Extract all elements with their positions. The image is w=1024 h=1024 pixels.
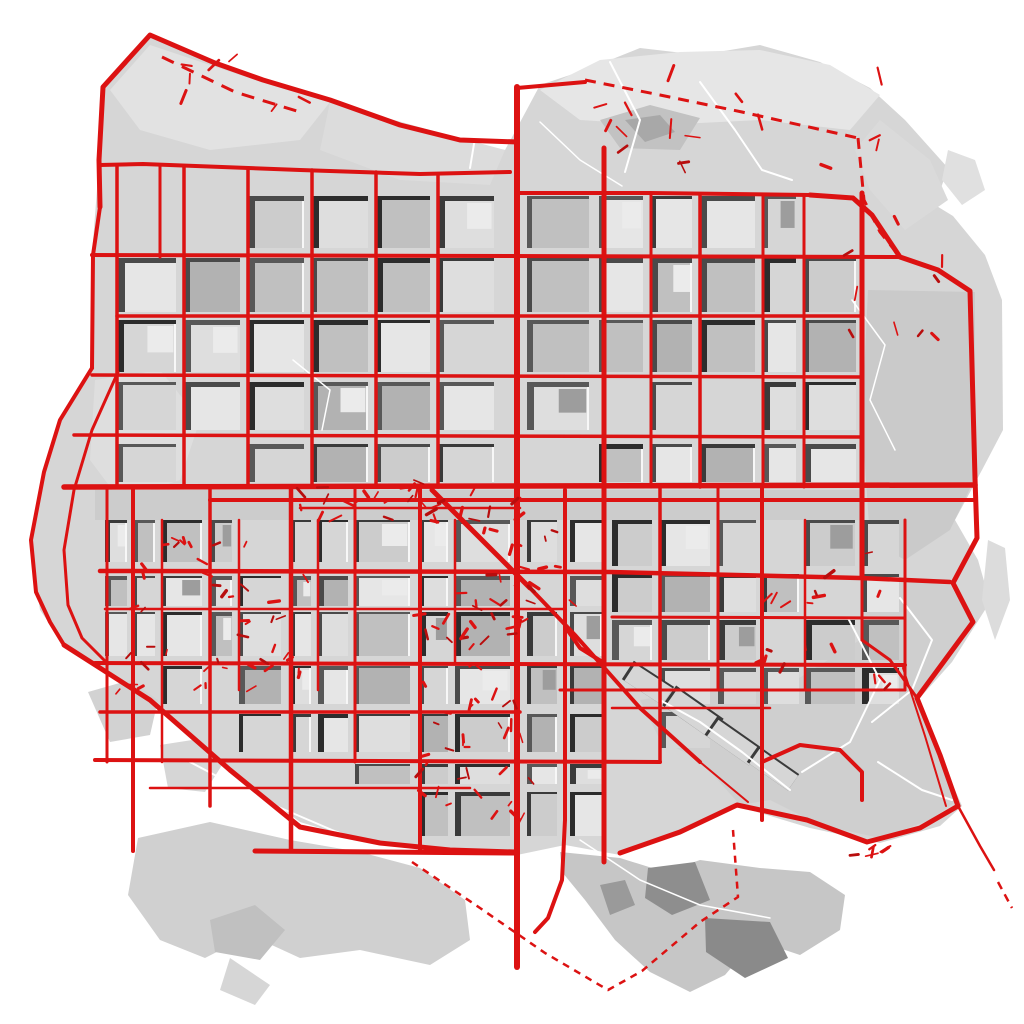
city-block-roof xyxy=(868,524,899,566)
city-block-annex xyxy=(781,201,795,228)
city-block-annex xyxy=(382,524,408,546)
city-block-roof xyxy=(295,522,311,562)
city-block-roof xyxy=(575,717,602,752)
city-block-highlight xyxy=(302,201,304,248)
city-block-roof xyxy=(531,794,557,836)
road-noise-fragment xyxy=(414,614,425,616)
city-block-roof xyxy=(707,201,755,248)
city-block-highlight xyxy=(408,578,410,606)
city-block-roof xyxy=(381,323,430,372)
city-block-roof xyxy=(109,614,127,656)
city-block-roof xyxy=(190,262,240,312)
terrain-islet-northeast xyxy=(942,150,985,205)
city-block-roof xyxy=(322,614,348,656)
city-block-roof xyxy=(606,449,643,482)
city-block-roof xyxy=(723,523,756,566)
city-block-highlight xyxy=(753,448,755,482)
road-noise-fragment xyxy=(182,64,192,65)
city-block-roof xyxy=(575,795,602,836)
city-block-annex xyxy=(382,580,408,595)
road-h-851 xyxy=(255,851,515,853)
road-noise-fragment xyxy=(300,505,301,510)
city-block-highlight xyxy=(309,668,311,704)
city-block-roof xyxy=(575,523,602,562)
city-block-roof xyxy=(444,386,494,430)
city-block-annex xyxy=(223,525,232,546)
road-noise-fragment xyxy=(401,487,411,488)
city-block-roof xyxy=(724,578,756,612)
city-block-roof xyxy=(359,614,410,656)
city-block-roof xyxy=(531,522,557,562)
road-noise-fragment xyxy=(269,601,280,602)
city-block-roof xyxy=(255,387,304,430)
city-block-annex xyxy=(686,526,708,549)
city-block-highlight xyxy=(690,447,692,482)
road-noise-fragment xyxy=(460,507,462,515)
city-block-annex xyxy=(303,582,310,596)
city-block-roof xyxy=(382,200,430,248)
city-block-roof xyxy=(443,261,494,312)
road-noise-fragment xyxy=(874,674,875,683)
city-block-roof xyxy=(167,669,202,704)
road-noise-fragment xyxy=(484,528,485,533)
city-block-roof xyxy=(359,716,410,752)
road-noise-fragment xyxy=(517,544,521,546)
road-noise-fragment xyxy=(444,712,451,713)
city-block-highlight xyxy=(492,447,494,482)
city-block-roof xyxy=(618,578,652,612)
road-noise-fragment xyxy=(229,54,237,61)
city-block-roof xyxy=(576,580,602,606)
city-block-roof xyxy=(425,767,448,784)
city-block-annex xyxy=(587,616,601,639)
road-noise-fragment xyxy=(815,591,817,595)
road-noise-fragment xyxy=(764,656,766,661)
city-block-roof xyxy=(382,386,430,430)
city-block-roof xyxy=(867,577,899,612)
road-h-255 xyxy=(92,255,900,257)
city-block-annex xyxy=(622,202,641,228)
city-block-annex xyxy=(739,627,755,646)
terrain-island-southwest-finger xyxy=(220,958,270,1005)
city-block-annex xyxy=(341,388,366,412)
city-block-roof xyxy=(667,625,710,660)
road-noise-fragment xyxy=(438,500,443,503)
city-block-roof xyxy=(809,261,856,312)
road-noise-fragment xyxy=(213,585,220,586)
city-block-annex xyxy=(673,265,690,292)
city-block-roof xyxy=(809,385,856,430)
city-block-highlight xyxy=(446,578,448,606)
city-block-roof xyxy=(111,580,127,606)
city-block-annex xyxy=(588,770,601,779)
city-block-roof xyxy=(317,447,368,482)
city-block-highlight xyxy=(508,717,510,752)
city-block-highlight xyxy=(346,522,348,562)
city-block-highlight xyxy=(555,767,557,784)
city-block-highlight xyxy=(408,614,410,656)
city-block-annex xyxy=(483,671,508,690)
city-block-highlight xyxy=(690,263,692,312)
city-block-roof xyxy=(533,324,589,372)
city-block-roof xyxy=(618,524,652,566)
city-block-roof xyxy=(443,447,494,482)
city-block-roof xyxy=(770,263,796,312)
city-block-roof xyxy=(656,385,692,430)
city-block-highlight xyxy=(302,263,304,312)
city-block-highlight xyxy=(446,668,448,704)
road-noise-fragment xyxy=(421,754,428,756)
city-block-roof xyxy=(606,263,643,312)
city-block-roof xyxy=(359,668,410,704)
city-block-highlight xyxy=(641,449,643,482)
city-block-roof xyxy=(167,615,202,656)
city-block-roof xyxy=(812,625,855,660)
city-block-highlight xyxy=(366,386,368,430)
city-block-highlight xyxy=(428,447,430,482)
city-block-roof xyxy=(768,323,796,372)
city-block-roof xyxy=(359,766,410,784)
city-block-annex xyxy=(559,389,587,413)
city-block-roof xyxy=(769,448,796,482)
road-noise-fragment xyxy=(555,566,560,567)
city-block-highlight xyxy=(555,616,557,656)
road-noise-fragment xyxy=(545,536,546,541)
city-block-roof xyxy=(255,201,304,248)
road-noise-fragment xyxy=(519,620,521,627)
road-noise-fragment xyxy=(813,595,824,597)
city-block-highlight xyxy=(708,625,710,660)
road-se-corner-exit xyxy=(958,806,994,870)
road-noise-fragment xyxy=(878,68,882,85)
city-block-roof xyxy=(444,324,494,372)
city-block-roof xyxy=(657,324,692,372)
road-noise-fragment xyxy=(756,661,760,663)
city-block-highlight xyxy=(508,524,510,562)
road-noise-fragment xyxy=(807,603,812,604)
city-block-highlight xyxy=(200,615,202,656)
city-block-roof xyxy=(255,263,304,312)
city-block-roof xyxy=(255,449,304,482)
city-block-roof xyxy=(770,387,796,430)
city-block-roof xyxy=(383,263,430,312)
road-noise-fragment xyxy=(679,162,689,164)
city-block-highlight xyxy=(174,324,176,372)
city-map-svg xyxy=(0,0,1024,1024)
city-block-highlight xyxy=(587,387,589,430)
city-block-annex xyxy=(830,525,853,549)
terrain-hill-ne xyxy=(540,50,880,130)
city-block-roof xyxy=(254,324,304,372)
road-h-760 xyxy=(95,760,660,762)
city-block-roof xyxy=(317,261,368,312)
road-noise-fragment xyxy=(767,650,771,652)
city-block-highlight xyxy=(200,523,202,562)
city-block-roof xyxy=(324,670,348,704)
city-block-roof xyxy=(532,767,557,784)
city-block-roof xyxy=(123,447,176,482)
city-block-roof xyxy=(424,668,448,704)
city-block-highlight xyxy=(408,522,410,562)
city-block-annex xyxy=(467,203,492,229)
city-block-roof xyxy=(707,325,755,372)
city-block-roof xyxy=(296,717,311,752)
city-block-roof xyxy=(532,199,589,248)
city-block-roof xyxy=(295,614,311,656)
city-block-roof xyxy=(574,668,602,704)
terrain-island-south-center xyxy=(560,852,845,992)
city-block-roof xyxy=(138,523,155,562)
city-block-roof xyxy=(319,325,368,372)
city-block-annex xyxy=(182,580,200,595)
city-block-roof xyxy=(125,263,176,312)
city-block-annex xyxy=(634,627,651,646)
city-block-highlight xyxy=(125,523,127,562)
city-block-roof xyxy=(137,614,155,656)
city-block-highlight xyxy=(650,625,652,660)
road-noise-fragment xyxy=(882,848,888,852)
road-se-corner-exit-dash xyxy=(998,882,1012,908)
city-block-highlight xyxy=(797,577,799,612)
city-block-roof xyxy=(665,577,710,612)
city-block-roof xyxy=(604,323,643,372)
city-block-roof xyxy=(533,616,557,656)
city-block-roof xyxy=(424,578,448,606)
city-block-roof xyxy=(425,795,448,836)
city-block-roof xyxy=(461,796,510,836)
road-noise-fragment xyxy=(189,74,190,84)
city-block-annex xyxy=(147,326,173,352)
city-block-roof xyxy=(656,447,692,482)
road-noise-fragment xyxy=(223,667,227,668)
road-noise-fragment xyxy=(878,591,880,596)
city-block-roof xyxy=(424,716,448,752)
city-block-roof xyxy=(324,718,348,752)
city-block-annex xyxy=(543,670,556,690)
road-h-377 xyxy=(92,375,862,377)
terrain-islet-east xyxy=(982,540,1010,640)
road-noise-fragment xyxy=(872,847,874,857)
city-block-roof xyxy=(656,199,692,248)
city-block-roof xyxy=(245,670,281,704)
city-block-roof xyxy=(724,672,756,704)
road-noise-fragment xyxy=(762,675,763,681)
road-noise-fragment xyxy=(423,682,425,686)
road-noise-fragment xyxy=(229,596,233,597)
road-noise-fragment xyxy=(850,854,858,855)
city-block-roof xyxy=(243,716,281,752)
road-noise-fragment xyxy=(355,496,357,501)
city-block-highlight xyxy=(153,523,155,562)
city-block-roof xyxy=(768,672,799,704)
road-noise-fragment xyxy=(142,570,144,578)
city-block-highlight xyxy=(346,670,348,704)
city-block-roof xyxy=(322,522,348,562)
city-block-roof xyxy=(191,387,240,430)
city-block-roof xyxy=(706,448,755,482)
city-block-highlight xyxy=(366,447,368,482)
city-map-figure xyxy=(0,0,1024,1024)
city-block-highlight xyxy=(230,580,232,606)
road-noise-fragment xyxy=(490,529,497,531)
city-block-highlight xyxy=(555,717,557,752)
road-noise-fragment xyxy=(508,633,517,634)
road-h-437 xyxy=(74,435,862,437)
road-noise-fragment xyxy=(539,567,547,569)
road-grid-top-right xyxy=(517,193,810,195)
city-block-highlight xyxy=(446,522,448,562)
road-noise-fragment xyxy=(163,544,168,545)
city-block-roof xyxy=(811,672,855,704)
city-block-annex xyxy=(435,524,447,546)
city-block-roof xyxy=(381,447,430,482)
city-block-roof xyxy=(707,263,755,312)
road-noise-fragment xyxy=(761,586,762,597)
city-block-roof xyxy=(324,580,348,606)
city-block-highlight xyxy=(309,717,311,752)
city-block-roof xyxy=(532,717,557,752)
city-block-roof xyxy=(811,449,856,482)
road-noise-fragment xyxy=(476,600,477,606)
road-noise-fragment xyxy=(513,617,522,618)
city-block-roof xyxy=(319,201,368,248)
road-noise-fragment xyxy=(217,659,218,663)
city-block-roof xyxy=(137,578,155,606)
city-block-roof xyxy=(123,385,176,430)
city-block-roof xyxy=(532,261,589,312)
city-block-annex xyxy=(118,525,127,546)
terrain-east-inner xyxy=(862,290,975,560)
city-block-annex xyxy=(223,618,231,640)
city-block-annex xyxy=(213,327,238,353)
